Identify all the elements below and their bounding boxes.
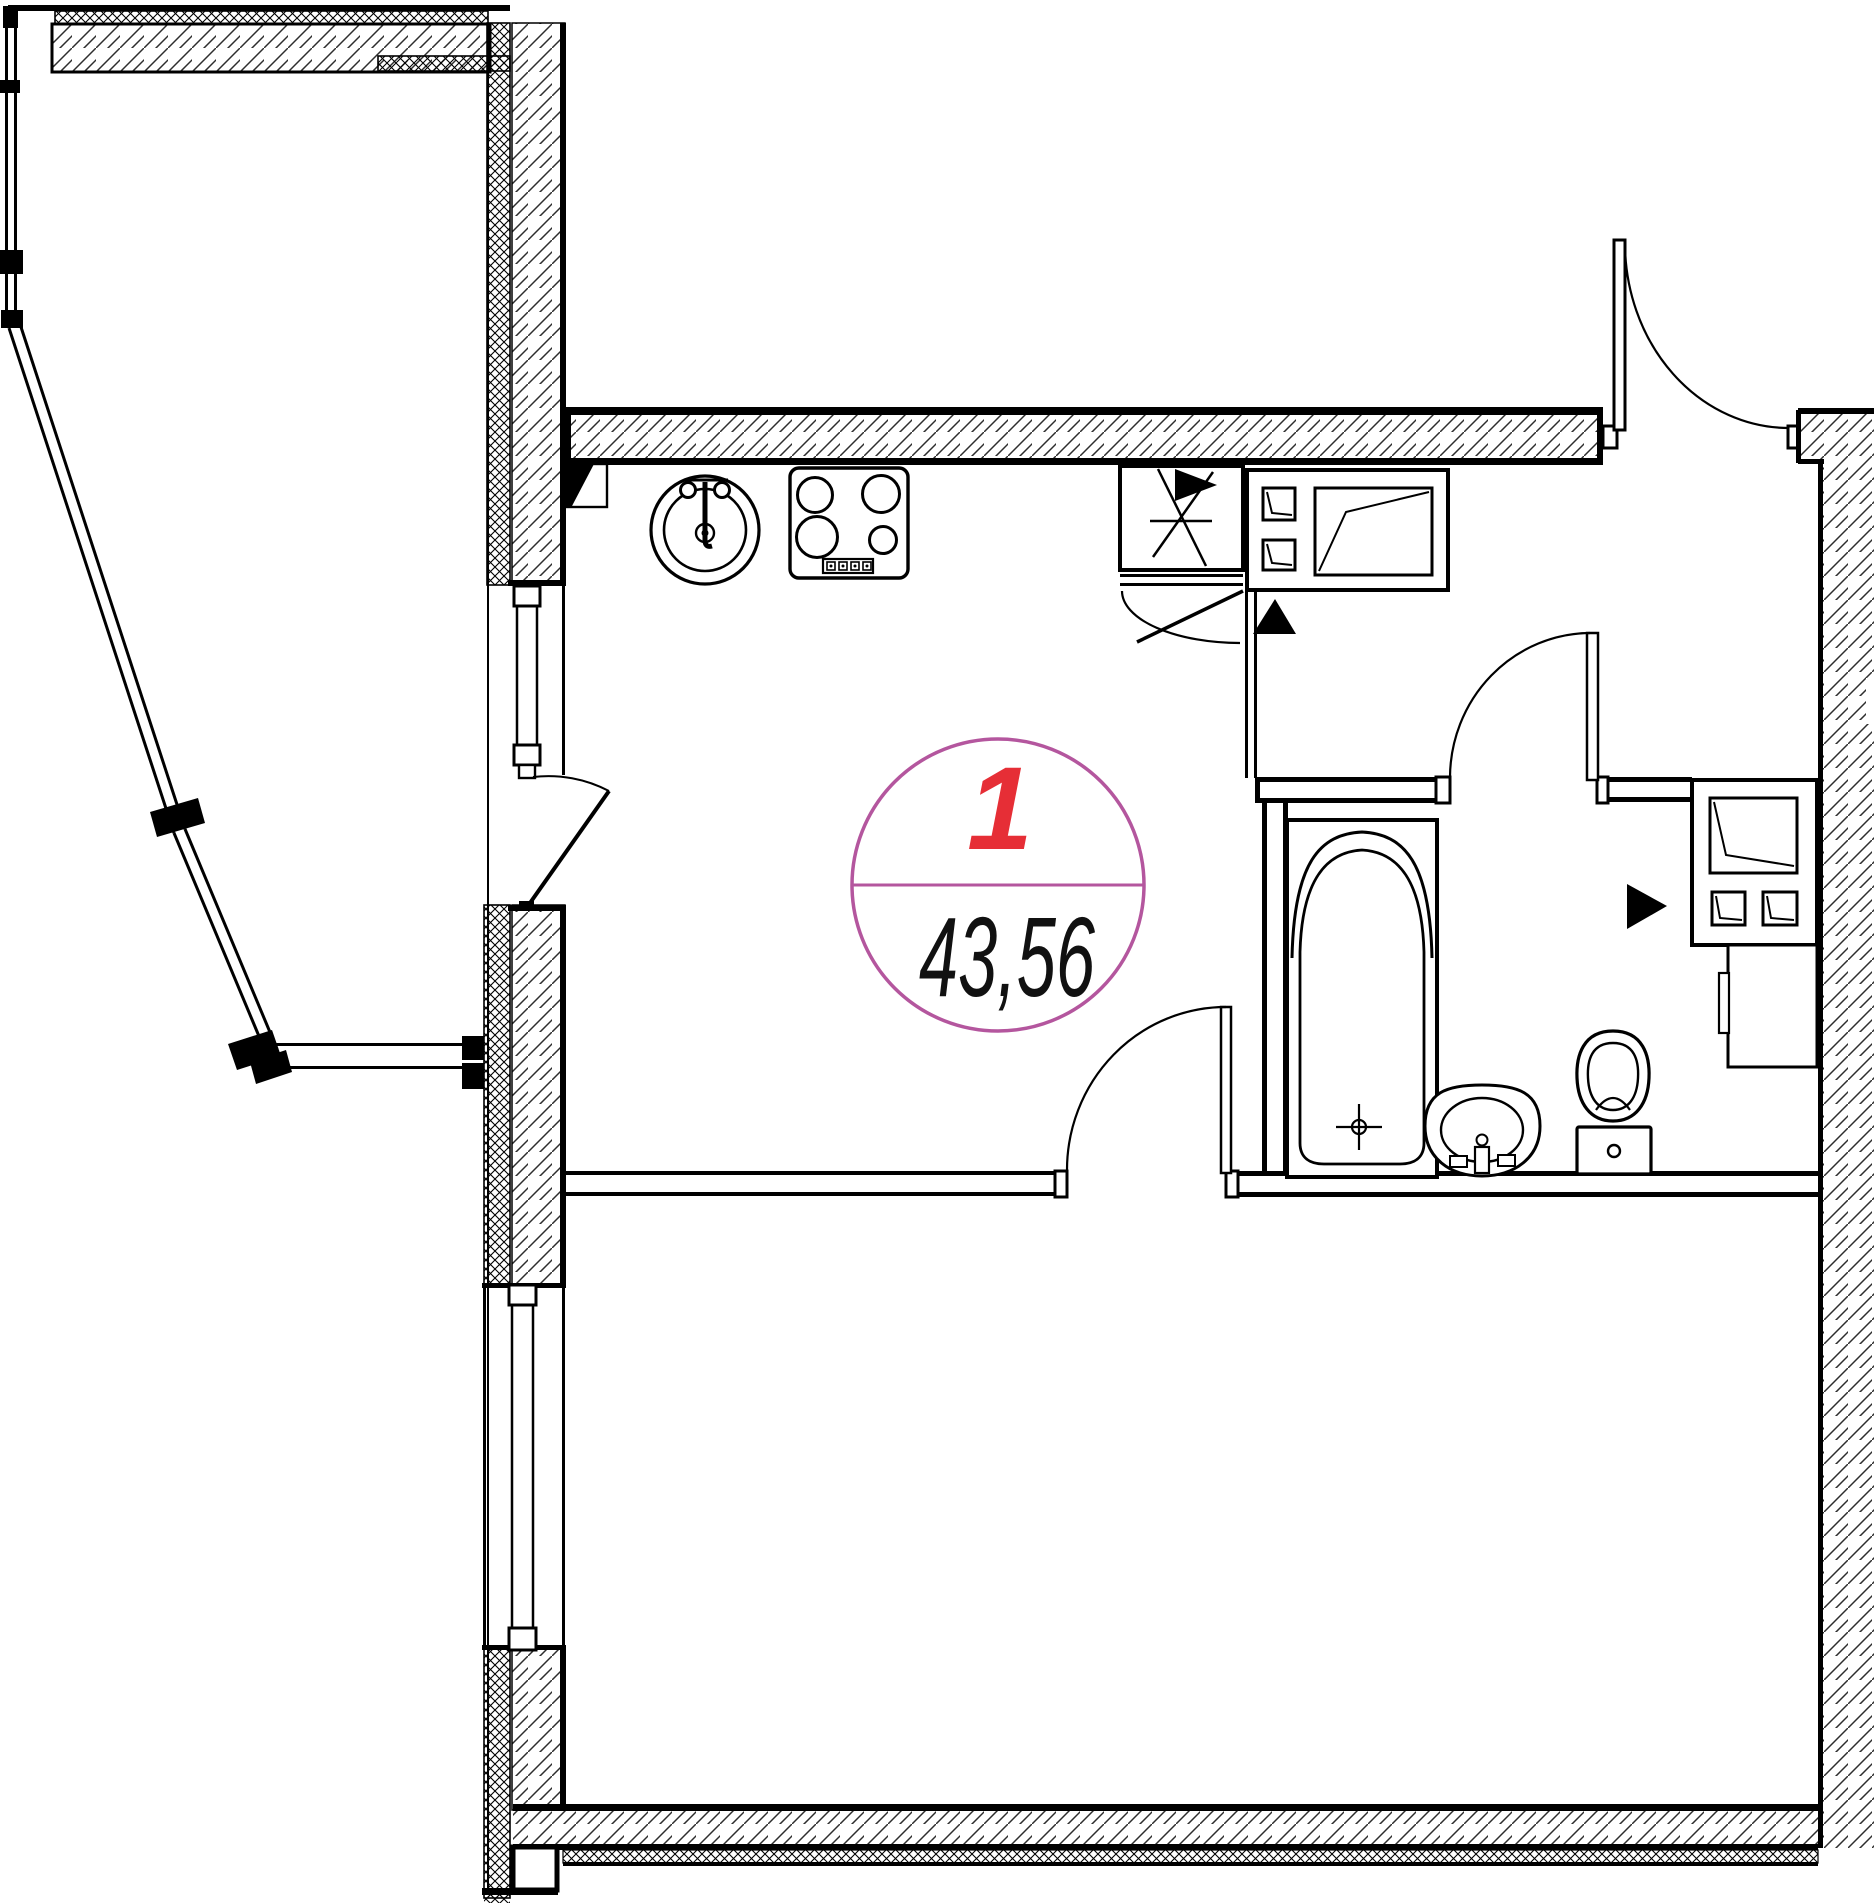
- riser-mark: [566, 464, 607, 507]
- room-door: [1067, 1007, 1231, 1173]
- window-lower: [483, 1285, 565, 1650]
- unit-area: 43,56: [919, 894, 1095, 1020]
- washbasin-icon: [1425, 1085, 1540, 1176]
- hall-partition: [1245, 590, 1257, 778]
- floor-plan-canvas: 1 43,56: [0, 0, 1874, 1903]
- floor-plan: 1 43,56: [0, 0, 1874, 1903]
- balcony-door: [519, 776, 609, 910]
- riser-arrow-up-icon: [1253, 599, 1296, 634]
- kitchen-doorway: [1122, 591, 1243, 643]
- window-upper: [514, 585, 565, 778]
- appliance-block: [1247, 470, 1448, 590]
- bottom-exterior-wall: [482, 1804, 1823, 1903]
- kitchen-top-wall: [565, 407, 1617, 465]
- balcony-glazing: [0, 6, 484, 1089]
- kitchen-sink-icon: [651, 476, 759, 584]
- unit-label: 1 43,56: [852, 739, 1144, 1031]
- bathroom-top-wall: [1255, 777, 1692, 803]
- cooktop-icon: [790, 468, 908, 578]
- cabinet: [1719, 945, 1817, 1067]
- entrance-door: [1614, 240, 1799, 448]
- unit-number: 1: [967, 743, 1033, 875]
- utility-shaft: [1692, 780, 1817, 945]
- toilet-icon: [1577, 1031, 1651, 1174]
- riser-arrow-right-icon: [1627, 884, 1667, 929]
- ventilation-duct-icon: [1120, 466, 1243, 586]
- balcony-top-wall: [8, 5, 510, 72]
- bathroom-left-wall: [1262, 802, 1288, 1174]
- bathtub-icon: [1287, 820, 1437, 1177]
- right-exterior-wall: [1796, 408, 1874, 1848]
- bathroom-door: [1450, 633, 1598, 780]
